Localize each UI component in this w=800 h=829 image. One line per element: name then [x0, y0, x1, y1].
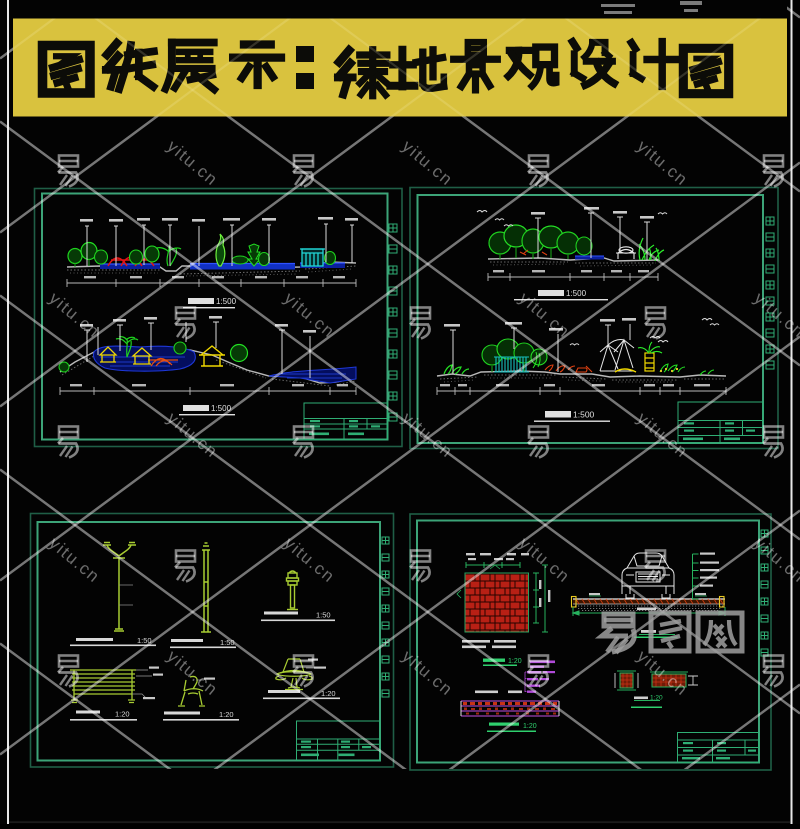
svg-text:1:500: 1:500 [216, 297, 237, 306]
svg-text:1:500: 1:500 [573, 410, 595, 420]
svg-text:1:500: 1:500 [566, 289, 587, 298]
svg-text:1:50: 1:50 [316, 611, 331, 620]
svg-text:1:20: 1:20 [508, 658, 522, 665]
svg-text:1:20: 1:20 [115, 710, 130, 719]
svg-text:1:20: 1:20 [219, 710, 234, 719]
svg-text:1:20: 1:20 [523, 723, 537, 730]
svg-text:1:20: 1:20 [650, 695, 663, 702]
